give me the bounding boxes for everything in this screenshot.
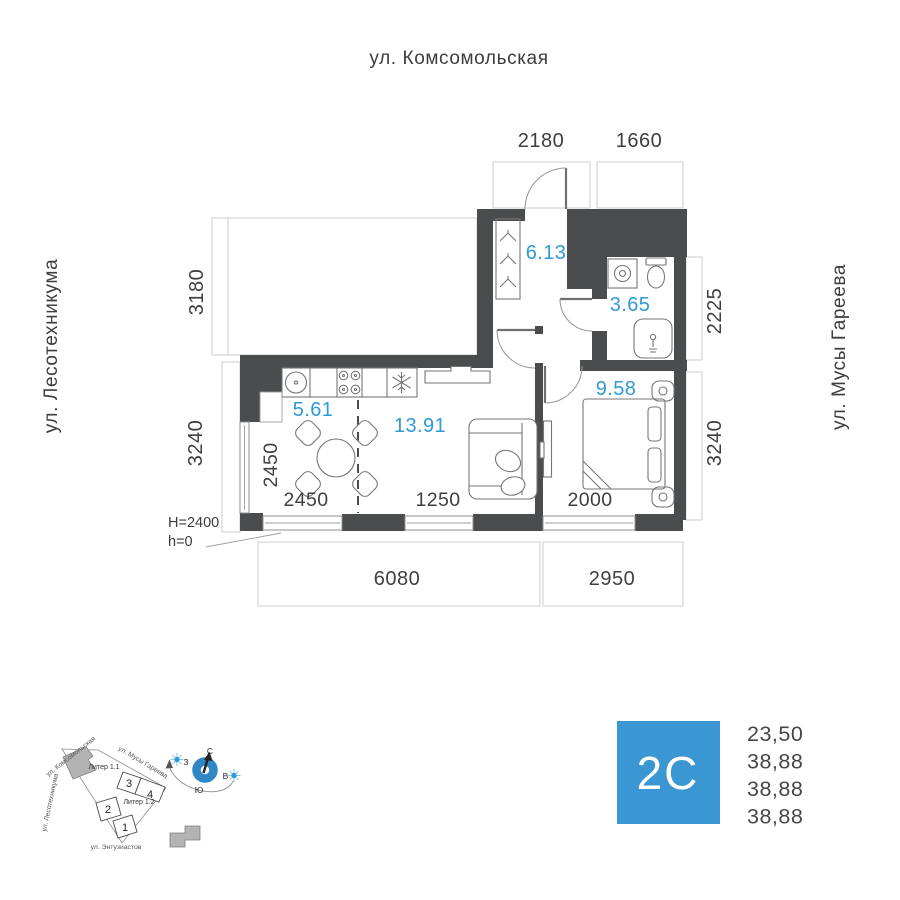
dining-set [293,418,380,499]
floorplan-viewer: ул. Комсомольская ул. Лесотехникума ул. … [0,0,900,900]
shelf-icon [425,367,490,384]
hanger-icon [500,230,516,287]
compass: С Ю З В [166,746,241,795]
section-3-label: 3 [126,778,132,790]
dim-window-left: 2450 [260,443,282,488]
site-minimap: 3 4 2 1 Литер 1.1 Литер 1.2 ул. Комсомол… [41,735,241,851]
windows [240,422,635,530]
liter-1-1-label: Литер 1.1 [88,764,119,771]
room-area-bedroom: 9.58 [596,378,637,400]
dim-window-3: 2000 [568,489,613,511]
dim-window-1: 2450 [284,489,329,511]
dim-bottom-1: 6080 [374,568,421,590]
compass-south: Ю [195,785,204,795]
floor-level-note: h=0 [168,534,193,550]
bath-sink-icon [634,319,672,358]
compass-west: З [183,757,188,767]
flat-info-block: 2C 23,50 38,88 38,88 38,88 [617,721,803,829]
sofa [469,419,537,499]
neighbor-building [170,826,200,847]
map-street-lesotekhnikuma: ул. Лесотехникума [41,773,60,832]
compass-east: В [223,771,229,781]
area-value-3: 38,88 [747,777,803,801]
sun-path-arrow [166,760,174,769]
height-notes: H=2400 h=0 [168,515,219,550]
room-area-kitchen: 5.61 [293,399,334,421]
washing-machine-icon [608,259,637,288]
compass-north: С [207,746,213,756]
floorplan-canvas: ул. Комсомольская ул. Лесотехникума ул. … [0,0,900,900]
area-value-4: 38,88 [747,805,803,829]
dim-bottom-2: 2950 [589,568,636,590]
height-leader-line [206,533,281,547]
hall-wardrobe [496,219,520,299]
duct-niche [260,392,282,422]
section-2-label: 2 [105,804,111,816]
room-area-living: 13.91 [394,415,446,437]
toilet-icon [646,258,666,288]
nightstand-top [652,381,674,401]
room-area-hall: 6.13 [526,242,567,264]
sun-icon-east [228,769,241,782]
dim-right-2: 3240 [704,420,726,467]
dim-top-1: 2180 [518,130,565,152]
dim-top-2: 1660 [616,130,663,152]
dim-left-1: 3180 [186,269,208,316]
street-left: ул. Лесотехникума [41,259,62,434]
dim-window-2: 1250 [416,489,461,511]
area-value-1: 23,50 [747,722,803,746]
area-value-2: 38,88 [747,750,803,774]
dim-right-1: 2225 [704,288,726,335]
map-street-entuziastov: ул. Энтузиастов [91,844,142,851]
nightstand-bottom [652,487,674,507]
street-right: ул. Мусы Гареева [829,264,850,430]
liter-1-2-label: Литер 1.2 [123,799,154,806]
flat-type-label: 2C [637,747,700,799]
section-1-label: 1 [122,822,128,834]
dim-left-2: 3240 [185,420,207,467]
bed [583,399,665,489]
room-area-bath: 3.65 [610,294,651,316]
street-top: ул. Комсомольская [369,48,548,69]
sun-icon-west [171,753,184,766]
ceiling-height-note: H=2400 [168,515,219,531]
